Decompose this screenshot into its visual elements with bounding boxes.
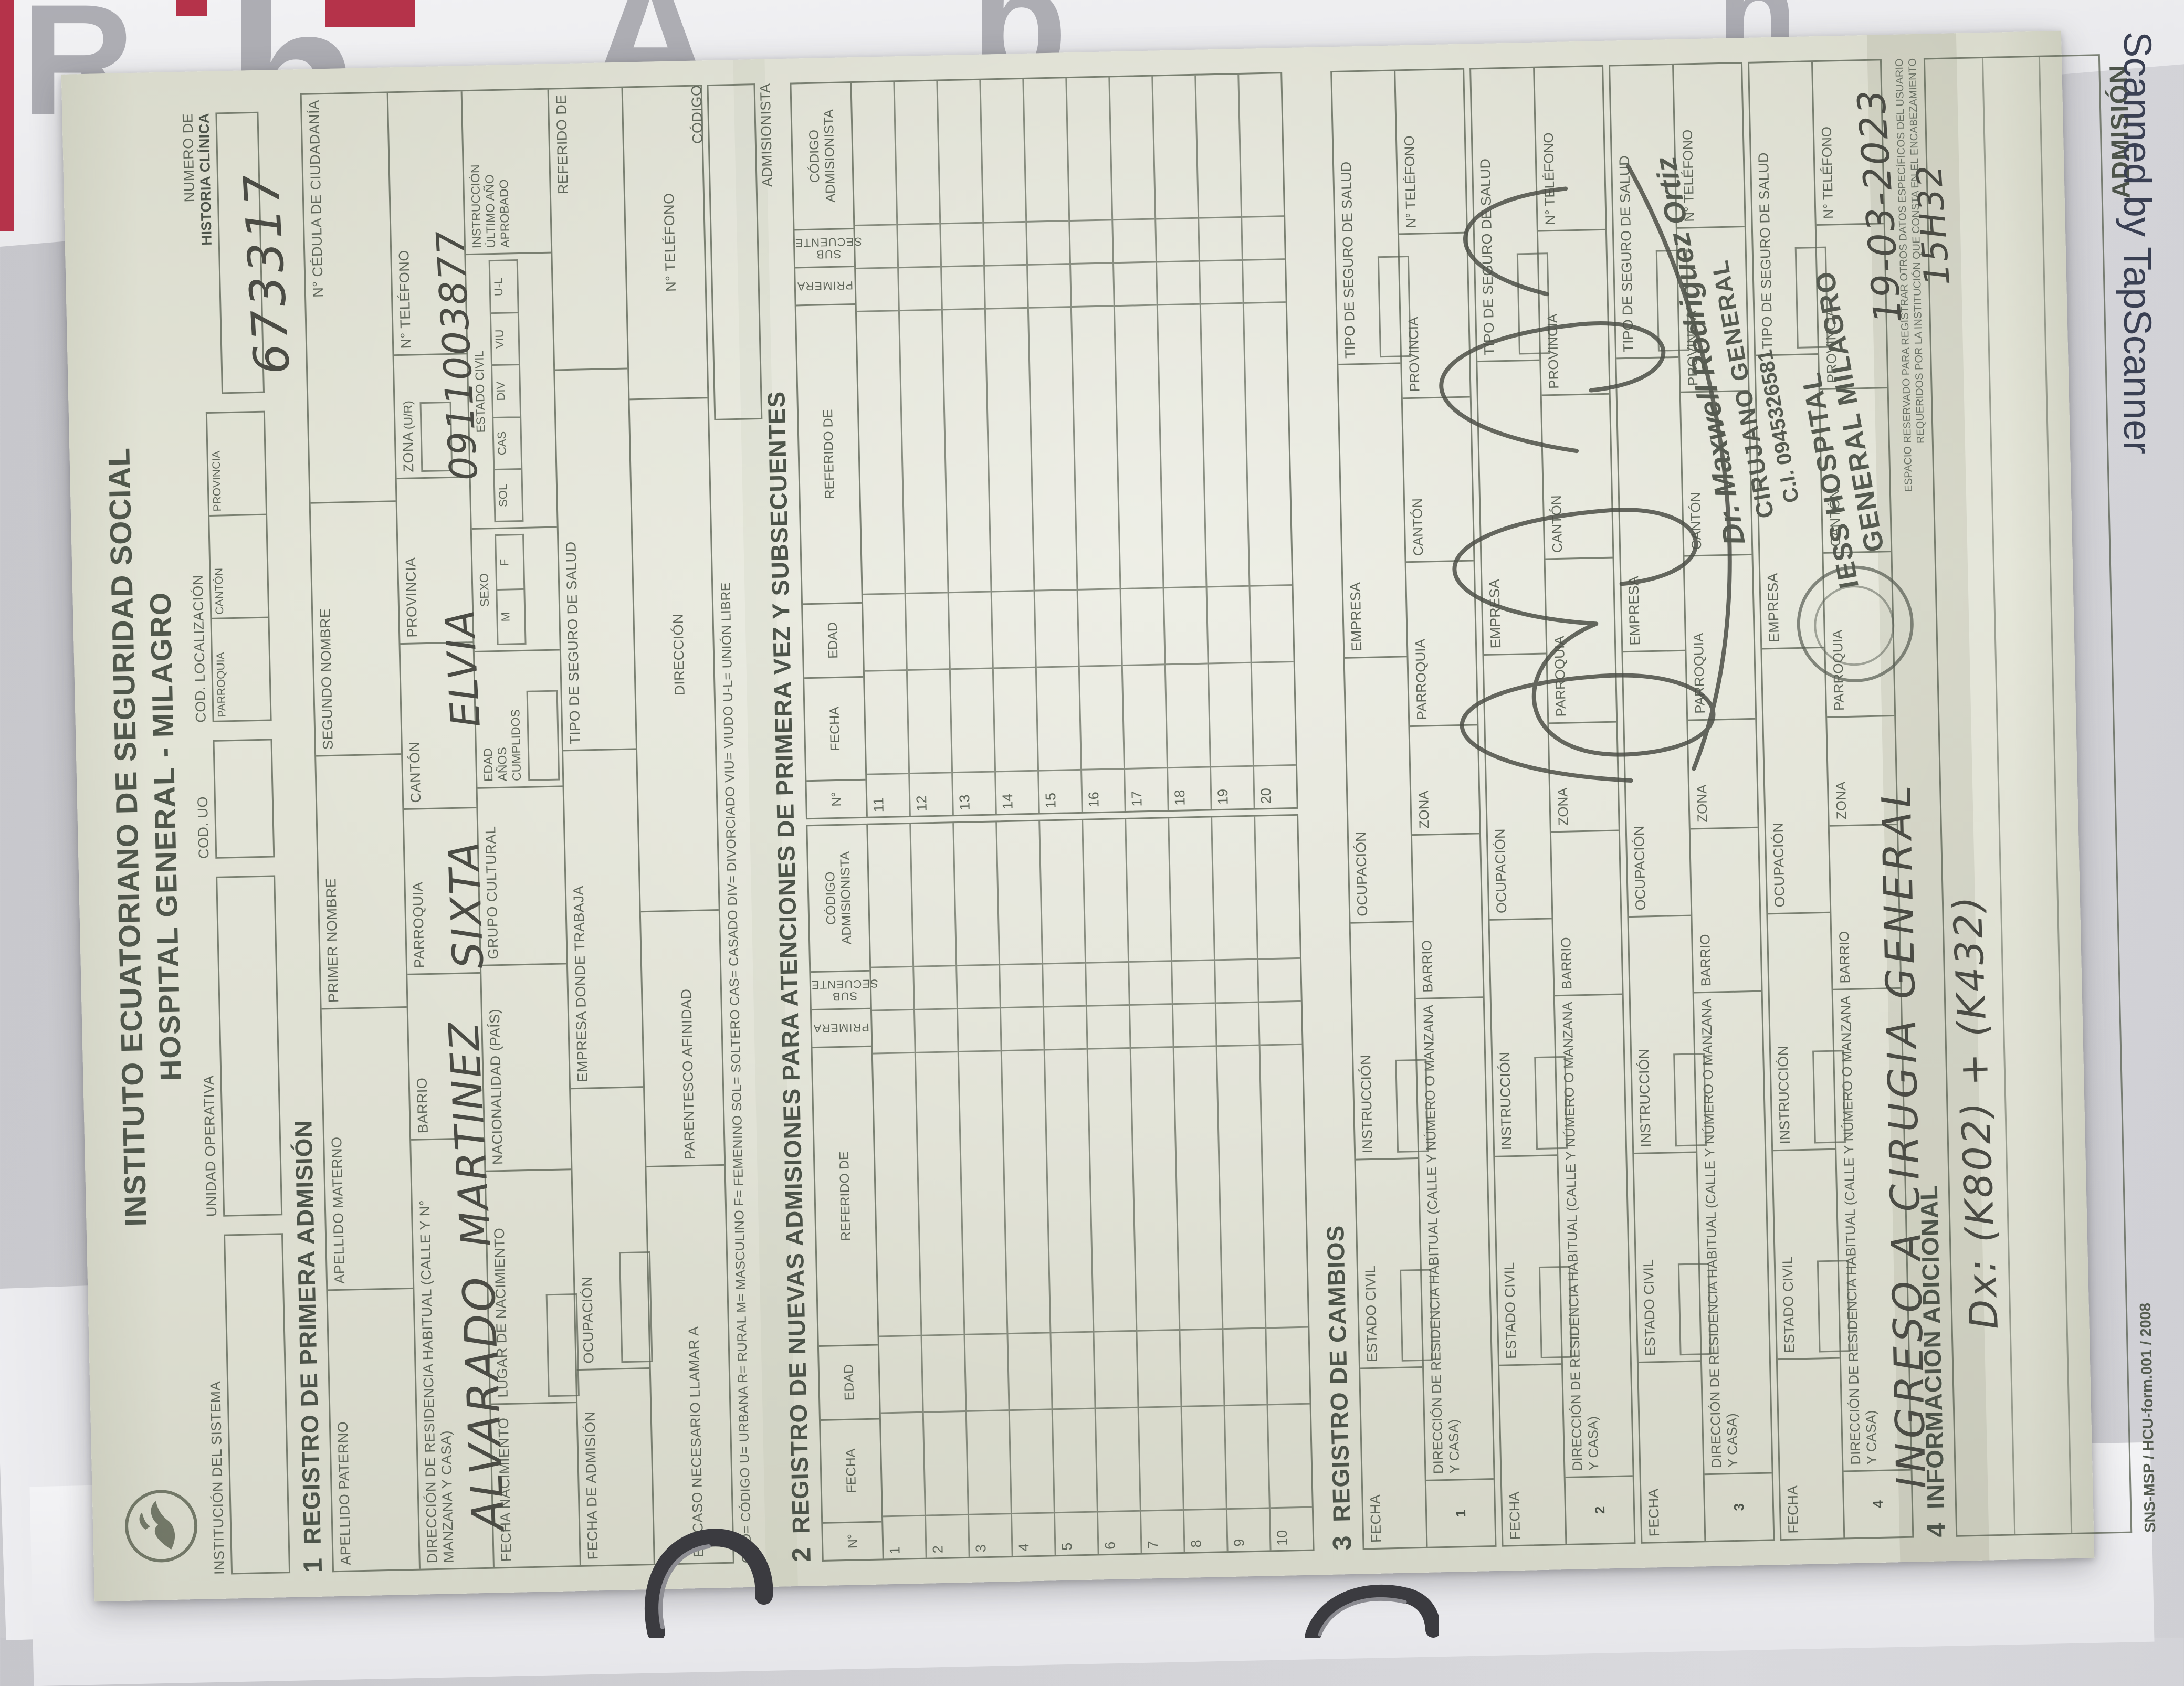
- b-estado-civil: ESTADO CIVIL: [1780, 1256, 1798, 1353]
- row-number: 1: [883, 1514, 926, 1558]
- row-number: 16: [1082, 768, 1125, 812]
- section2-table: N° FECHA EDAD REFERIDO DE PRIMERA SUB SE…: [790, 72, 1314, 1562]
- tipo-seguro-label: TIPO DE SEGURO DE SALUD: [563, 541, 583, 744]
- poster-red-stripe: [0, 0, 14, 231]
- row-number: 5: [1055, 1511, 1098, 1555]
- edad-l1: EDAD: [481, 748, 495, 782]
- col-n: N°: [806, 779, 866, 818]
- handwritten-primer-nombre: SIXTA: [439, 839, 493, 970]
- cell-referido-de: REFERIDO DE: [549, 88, 628, 370]
- metal-clip-right: [1302, 1580, 1438, 1638]
- instruccion-l3: APROBADO: [497, 179, 512, 248]
- cell-empresa-trabaja: EMPRESA DONDE TRABAJA: [563, 748, 643, 1088]
- cell-instruccion: INSTRUCCIÓN ÚLTIMO AÑO APROBADO: [463, 90, 551, 254]
- row-number: 9: [1227, 1507, 1270, 1551]
- sexo-m: M: [496, 588, 526, 645]
- handwritten-apellido-paterno: ALVARADO: [453, 1274, 514, 1531]
- col-fecha: FECHA: [821, 1418, 881, 1522]
- handwritten-segundo-nombre: ELVIA: [436, 607, 489, 729]
- admisionista-block: CÓDIGO ADMISIONISTA: [688, 83, 781, 420]
- tapscanner-watermark: Scanned by TapScanner: [2115, 31, 2162, 661]
- b-instruccion: INSTRUCCIÓN: [1358, 1055, 1375, 1153]
- row-number: 15: [1039, 768, 1081, 813]
- col-edad: EDAD: [803, 602, 863, 677]
- sexo-f: F: [495, 534, 525, 589]
- unidad-box: [216, 875, 282, 1216]
- segundo-nombre-label: SEGUNDO NOMBRE: [317, 608, 336, 750]
- parroquia-label: PARROQUIA: [409, 881, 427, 968]
- col-primera: PRIMERA: [797, 279, 854, 292]
- ec-viu: VIU: [490, 312, 520, 365]
- b-barrio: BARRIO: [1419, 940, 1435, 993]
- apellido-paterno-label: APELLIDO PATERNO: [335, 1421, 354, 1565]
- apellido-materno-label: APELLIDO MATERNO: [329, 1136, 348, 1284]
- primer-nombre-label: PRIMER NOMBRE: [323, 878, 341, 1003]
- cell-cedula: N° CÉDULA DE CIUDADANÍA: [302, 93, 396, 502]
- b-fecha: FECHA: [1645, 1489, 1662, 1537]
- row-number: 3: [969, 1513, 1012, 1557]
- b-direccion: DIRECCIÓN DE RESIDENCIA HABITUAL (CALLE …: [1559, 1003, 1601, 1471]
- section4-number: 4: [1921, 1522, 1952, 1537]
- b-direccion: DIRECCIÓN DE RESIDENCIA HABITUAL (CALLE …: [1420, 1006, 1462, 1474]
- b-ocupacion: OCUPACIÓN: [1770, 823, 1788, 908]
- cod-loc-canton: CANTÓN: [209, 513, 268, 618]
- scanned-sheet: INSTITUTO ECUATORIANO DE SEGURIDAD SOCIA…: [61, 31, 2095, 1601]
- b-barrio: BARRIO: [1697, 934, 1714, 986]
- parentesco-label: PARENTESCO AFINIDAD: [677, 916, 698, 1160]
- col-referido: REFERIDO DE: [796, 303, 862, 603]
- direccion-label: DIRECCIÓN DE RESIDENCIA HABITUAL (CALLE …: [417, 1200, 457, 1564]
- codigo-label: CÓDIGO: [688, 85, 705, 144]
- col-primera: PRIMERA: [813, 1021, 870, 1035]
- b-ocupacion: OCUPACIÓN: [1631, 826, 1649, 911]
- iess-logo-icon: [121, 1486, 201, 1566]
- form-code: SNS-MSP / HCU-form.001 / 2008: [2137, 1303, 2160, 1533]
- cell-apellido-materno: APELLIDO MATERNO: [322, 1006, 413, 1289]
- ec-cas: CAS: [492, 416, 522, 469]
- col-codigo-l2: ADMISIONISTA: [822, 109, 839, 203]
- form-portrait: INSTITUTO ECUATORIANO DE SEGURIDAD SOCIA…: [61, 31, 2095, 1601]
- ec-div: DIV: [491, 364, 521, 417]
- b-barrio: BARRIO: [1558, 937, 1574, 989]
- col-n: N°: [823, 1521, 883, 1559]
- empresa-trabaja-label: EMPRESA DONDE TRABAJA: [571, 886, 591, 1082]
- b-fecha: FECHA: [1506, 1491, 1523, 1540]
- metal-clip-left: [635, 1522, 782, 1638]
- admisionista-box: [707, 83, 762, 420]
- cell-direccion2: DIRECCIÓN: [629, 397, 718, 911]
- edad-l3: CUMPLIDOS: [508, 709, 523, 781]
- row-number: 6: [1098, 1510, 1141, 1554]
- col-referido: REFERIDO DE: [812, 1046, 877, 1345]
- b-instruccion: INSTRUCCIÓN: [1775, 1046, 1793, 1144]
- block-number: 3: [1705, 1472, 1773, 1541]
- row-number: 8: [1184, 1508, 1227, 1552]
- section1-title: REGISTRO DE PRIMERA ADMISIÓN: [289, 1120, 327, 1545]
- ec-ul: U-L: [489, 259, 519, 312]
- b-instruccion: INSTRUCCIÓN: [1636, 1049, 1654, 1147]
- col-codigo-l1: CÓDIGO: [823, 871, 839, 925]
- b-instruccion: INSTRUCCIÓN: [1497, 1052, 1515, 1151]
- row-number: 13: [953, 771, 995, 815]
- b-fecha: FECHA: [1367, 1494, 1384, 1543]
- b-direccion: DIRECCIÓN DE RESIDENCIA HABITUAL (CALLE …: [1837, 996, 1879, 1465]
- row-number: 7: [1141, 1509, 1184, 1553]
- section2-number: 2: [786, 1547, 817, 1562]
- row-number: 19: [1211, 765, 1254, 809]
- barrio-label: BARRIO: [414, 1077, 431, 1133]
- cell-nacionalidad: NACIONALIDAD (PAÍS): [481, 963, 571, 1171]
- direccion2-label: DIRECCIÓN: [666, 404, 693, 904]
- ec-sol: SOL: [493, 468, 523, 523]
- b-direccion: DIRECCIÓN DE RESIDENCIA HABITUAL (CALLE …: [1698, 999, 1740, 1468]
- fecha-admision-label: FECHA DE ADMISIÓN: [582, 1411, 601, 1560]
- row-number: 4: [1012, 1512, 1055, 1556]
- col-codigo-l2: ADMISIONISTA: [837, 851, 855, 945]
- section2-right-half: N° FECHA EDAD REFERIDO DE PRIMERA SUB SE…: [790, 72, 1298, 819]
- instruccion-l2: ÚLTIMO AÑO: [482, 174, 498, 248]
- col-codigo-l1: CÓDIGO: [806, 130, 823, 183]
- cell-apellido-paterno: APELLIDO PATERNO: [328, 1288, 419, 1571]
- llamar-a-label: EN CASO NECESARIO LLAMAR A: [682, 1172, 707, 1558]
- admisionista-label: ADMISIONISTA: [757, 83, 775, 187]
- cod-uo-label: COD. UO: [193, 740, 212, 859]
- telefono2-label: N° TELÉFONO: [659, 92, 681, 392]
- zona-label: ZONA: [400, 431, 417, 472]
- row-number: 2: [926, 1514, 969, 1558]
- cod-uo-box: [213, 739, 275, 859]
- cell-llamar-a: EN CASO NECESARIO LLAMAR A: [646, 1164, 733, 1564]
- section2-left-half: N° FECHA EDAD REFERIDO DE PRIMERA SUB SE…: [806, 814, 1314, 1562]
- referido-de-label: REFERIDO DE: [553, 94, 572, 195]
- ocupacion-label: OCUPACIÓN: [579, 1276, 597, 1364]
- canton-label: CANTÓN: [407, 741, 424, 803]
- b-estado-civil: ESTADO CIVIL: [1641, 1259, 1658, 1356]
- row-number: 18: [1168, 766, 1211, 810]
- cell-ocupacion: OCUPACIÓN: [571, 1086, 649, 1369]
- cell-parentesco: PARENTESCO AFINIDAD: [641, 909, 724, 1166]
- cell-sexo: SEXO M F: [472, 526, 560, 651]
- row-number: 12: [910, 772, 952, 816]
- tapscanner-watermark-text: Scanned by TapScanner: [2115, 31, 2160, 454]
- b-ocupacion: OCUPACIÓN: [1353, 831, 1371, 916]
- row-number: 20: [1254, 764, 1297, 808]
- col-subsecuente: SUB SECUENTE: [811, 977, 879, 1003]
- row-number: 17: [1125, 767, 1168, 811]
- b-barrio: BARRIO: [1836, 931, 1853, 983]
- cod-loc-provincia: PROVINCIA: [207, 412, 266, 515]
- col-edad: EDAD: [819, 1344, 879, 1419]
- b-estado-civil: ESTADO CIVIL: [1362, 1265, 1380, 1362]
- field-institucion-del-sistema: INSTITUCIÓN DEL SISTEMA: [204, 1233, 290, 1575]
- b-ocupacion: OCUPACIÓN: [1492, 828, 1510, 913]
- zona-sub-label: (U/R): [401, 401, 415, 429]
- telefono-label: N° TELÉFONO: [396, 250, 414, 349]
- cedula-label: N° CÉDULA DE CIUDADANÍA: [306, 100, 327, 298]
- edad-l2: AÑOS: [495, 747, 509, 782]
- section3-number: 3: [1327, 1535, 1358, 1551]
- institucion-box: [224, 1233, 290, 1574]
- b-estado-civil: ESTADO CIVIL: [1501, 1262, 1519, 1360]
- field-cod-uo: COD. UO: [193, 739, 275, 859]
- handwritten-historia-clinica: 673317: [233, 170, 301, 376]
- row-number: 10: [1270, 1506, 1313, 1550]
- poster-red-chip: [176, 0, 207, 16]
- section1-number: 1: [297, 1558, 328, 1573]
- section3-title: REGISTRO DE CAMBIOS: [1321, 1225, 1356, 1522]
- field-unidad-operativa: UNIDAD OPERATIVA: [196, 875, 282, 1217]
- col-subsecuente: SUB SECUENTE: [795, 235, 863, 261]
- provincia-label: PROVINCIA: [403, 557, 420, 638]
- field-cod-localizacion: COD. LOCALIZACIÓN PARROQUIA CANTÓN PROVI…: [186, 410, 272, 723]
- cell-primer-nombre: PRIMER NOMBRE: [316, 753, 406, 1008]
- cell-tipo-seguro: TIPO DE SEGURO DE SALUD: [555, 368, 636, 750]
- row-number: 11: [867, 773, 909, 817]
- b-fecha: FECHA: [1784, 1485, 1801, 1534]
- block-number: 2: [1566, 1475, 1634, 1544]
- cod-loc-parroquia: PARROQUIA: [212, 617, 270, 721]
- block-number: 1: [1426, 1478, 1495, 1547]
- cell-segundo-nombre: SEGUNDO NOMBRE: [311, 500, 401, 755]
- row-number: 14: [996, 770, 1038, 814]
- col-fecha: FECHA: [804, 676, 865, 781]
